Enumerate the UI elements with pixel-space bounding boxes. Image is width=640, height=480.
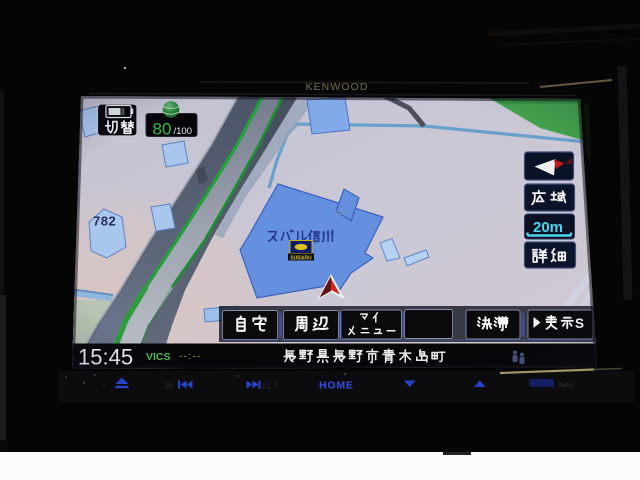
svg-text:NAV: NAV [559, 381, 574, 390]
svg-text:#1: #1 [262, 382, 271, 391]
svg-text:16: 16 [164, 381, 173, 390]
svg-text:HOME: HOME [319, 380, 354, 392]
